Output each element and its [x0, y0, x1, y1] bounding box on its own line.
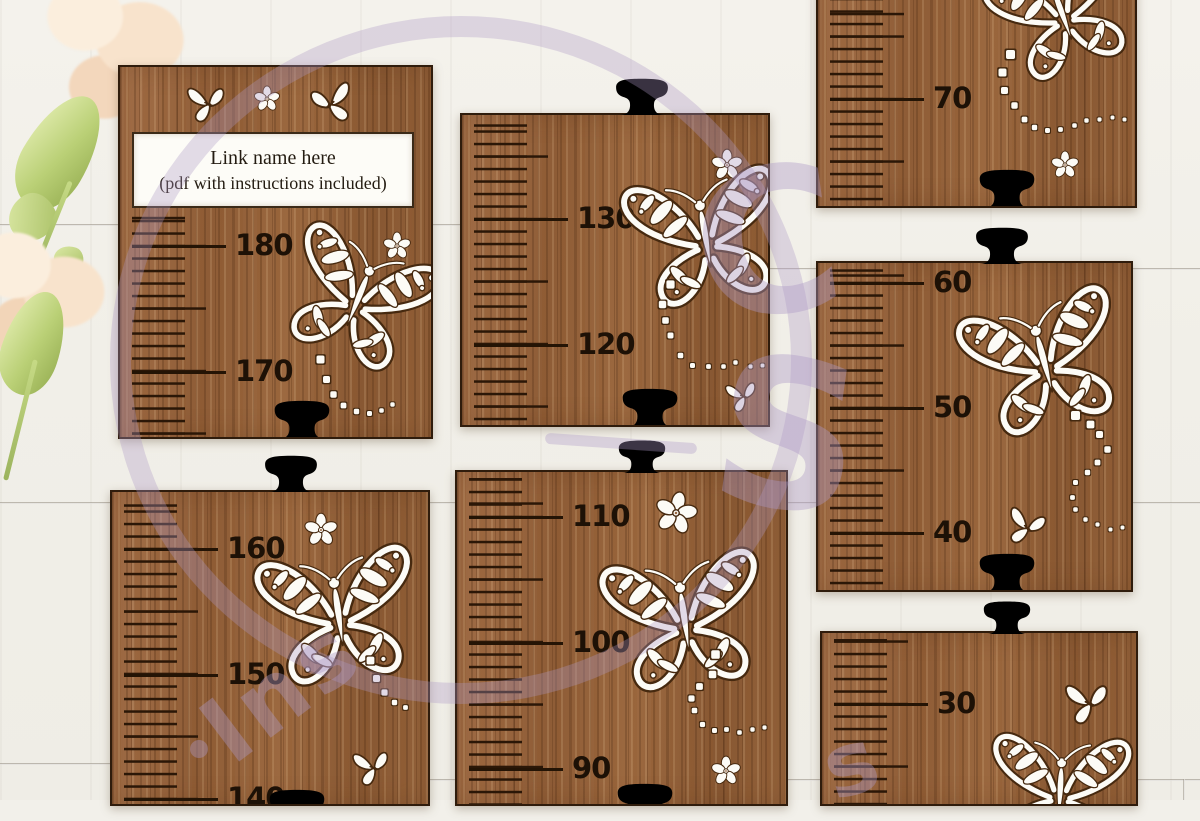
ruler-ticks	[830, 269, 883, 589]
flower-icon	[253, 85, 281, 113]
puzzle-tab	[606, 439, 678, 473]
major-tick	[132, 245, 226, 248]
growth-chart-panel-160-150-140: 160 150 140	[110, 490, 430, 806]
puzzle-tab	[255, 454, 327, 492]
ruler-ticks	[830, 0, 883, 208]
height-label: 70	[933, 84, 971, 113]
flower-icon	[382, 231, 412, 261]
butterfly-large-icon	[969, 0, 1137, 106]
growth-chart-panel-130-120: 130 120	[460, 113, 770, 427]
butterfly-small-icon	[1003, 500, 1054, 551]
link-name-banner: Link name here (pdf with instructions in…	[132, 132, 414, 208]
butterfly-large-icon	[610, 150, 770, 331]
puzzle-tab	[966, 226, 1038, 264]
major-tick	[830, 282, 924, 285]
major-tick	[474, 344, 568, 347]
ruler-ticks	[124, 498, 177, 804]
butterfly-small-icon	[348, 740, 398, 790]
major-tick	[124, 674, 218, 677]
puzzle-notch	[969, 552, 1045, 592]
height-label: 40	[933, 518, 971, 547]
major-tick	[469, 516, 563, 519]
puzzle-notch	[612, 387, 688, 427]
butterfly-dot-trail	[120, 67, 121, 68]
butterfly-dot-trail	[457, 472, 458, 473]
major-tick	[830, 98, 924, 101]
flower-icon	[649, 486, 704, 541]
butterfly-dot-trail	[112, 492, 113, 493]
major-tick	[830, 532, 924, 535]
puzzle-notch	[969, 168, 1045, 208]
butterfly-small-icon	[303, 74, 357, 128]
flower-icon	[1050, 150, 1080, 180]
puzzle-notch	[259, 788, 335, 806]
banner-line1: Link name here	[210, 147, 336, 170]
height-label: 110	[572, 502, 630, 531]
puzzle-notch	[264, 399, 340, 439]
major-tick	[124, 548, 218, 551]
puzzle-tab	[606, 77, 678, 115]
butterfly-large-icon	[589, 533, 781, 713]
butterfly-large-icon	[244, 529, 430, 707]
flower-icon	[710, 755, 742, 787]
major-tick	[132, 371, 226, 374]
growth-chart-panel-110-100-90: 110 100 90	[455, 470, 788, 806]
major-tick	[124, 798, 218, 801]
growth-chart-panel-30: 30	[820, 631, 1138, 806]
height-label: 90	[572, 754, 610, 783]
butterfly-dot-trail	[462, 115, 463, 116]
butterfly-large-icon	[981, 721, 1138, 806]
butterfly-dot-trail	[818, 263, 819, 264]
ruler-ticks	[474, 119, 527, 425]
major-tick	[474, 218, 568, 221]
major-tick	[469, 768, 563, 771]
height-label: 60	[933, 268, 971, 297]
height-label: 170	[235, 357, 293, 386]
major-tick	[834, 703, 928, 706]
height-label: 120	[577, 330, 635, 359]
puzzle-notch	[607, 782, 683, 806]
butterfly-small-icon	[721, 372, 765, 416]
ruler-ticks	[834, 639, 887, 804]
butterfly-small-icon	[183, 76, 233, 126]
growth-chart-panel-70: 70	[816, 0, 1137, 208]
major-tick	[469, 642, 563, 645]
height-label: 180	[235, 231, 293, 260]
major-tick	[830, 407, 924, 410]
height-label: 30	[937, 689, 975, 718]
puzzle-tab	[971, 600, 1043, 634]
butterfly-small-icon	[1061, 672, 1117, 728]
banner-line2: (pdf with instructions included)	[159, 173, 386, 194]
growth-chart-panel-180-170: Link name here (pdf with instructions in…	[118, 65, 433, 439]
growth-chart-panel-60-50-40: 60 50 40	[816, 261, 1133, 592]
